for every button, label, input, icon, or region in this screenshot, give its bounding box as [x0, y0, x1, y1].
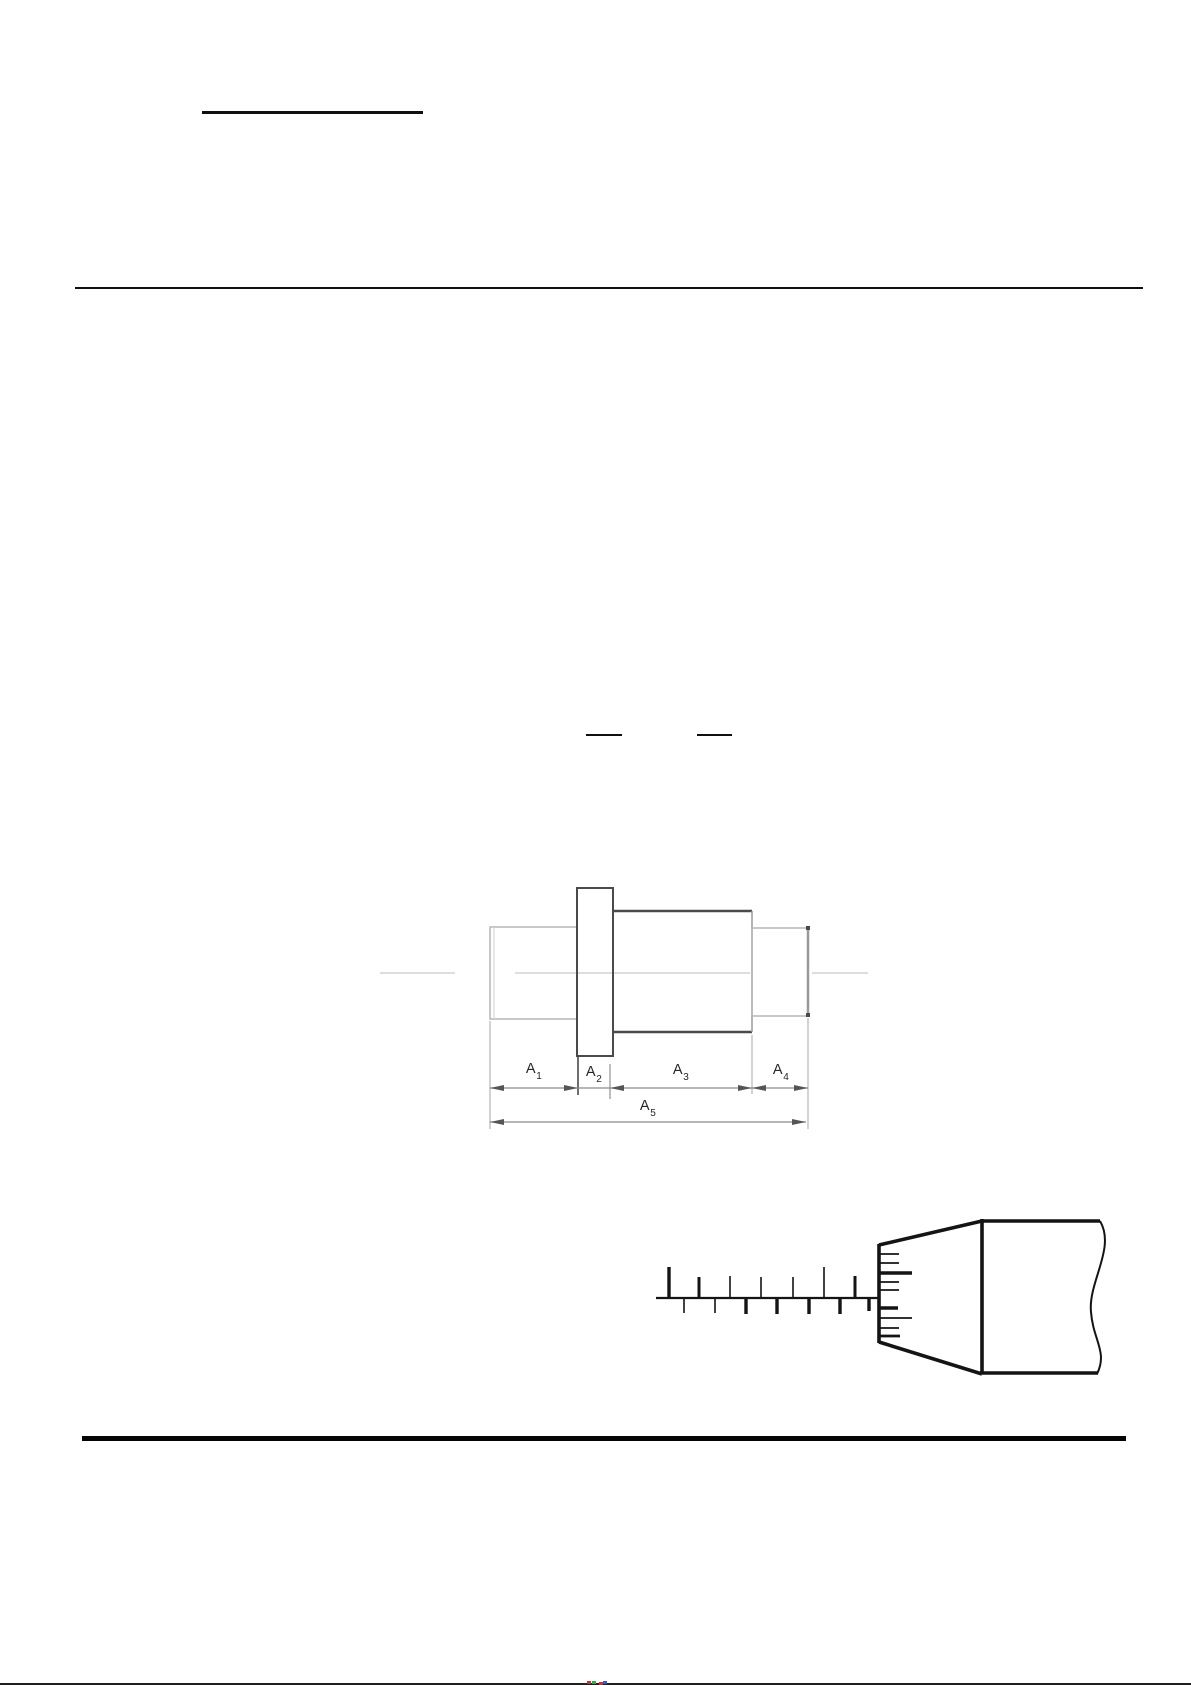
break-line	[1091, 1221, 1105, 1374]
dimension-label-a5: A5	[640, 1099, 656, 1117]
arrowhead	[792, 1119, 806, 1125]
arrowhead	[794, 1085, 808, 1091]
sleeve-ticks-lower	[684, 1298, 869, 1314]
arrowhead	[752, 1085, 766, 1091]
bottom-divider-rule	[82, 1436, 1126, 1441]
dimension-line-row	[490, 1085, 808, 1091]
thimble-ticks	[880, 1254, 912, 1336]
color-artifact	[592, 1681, 596, 1684]
figure-artwork	[0, 0, 1191, 1685]
figure-micrometer-drawing	[656, 1219, 1105, 1374]
shaft-large-cylinder	[613, 911, 752, 1032]
figure-shaft-drawing	[380, 888, 868, 1129]
shaft-right-cylinder	[752, 926, 810, 1017]
arrowhead	[490, 1085, 504, 1091]
color-artifact	[603, 1681, 607, 1684]
arrowhead	[564, 1085, 578, 1091]
arrowhead	[490, 1119, 504, 1125]
color-artifact	[587, 1681, 591, 1684]
dimension-label-a3: A3	[673, 1063, 689, 1081]
micrometer-thimble-outline	[879, 1219, 1105, 1374]
sleeve-ticks-upper	[669, 1267, 855, 1298]
dimension-label-a1: A1	[526, 1062, 542, 1080]
arrowhead	[610, 1085, 624, 1091]
document-page: A1 A2 A3 A4 A5	[0, 0, 1191, 1685]
dimension-label-a2: A2	[586, 1065, 602, 1083]
dimension-label-a4: A4	[773, 1063, 789, 1081]
shaft-flange	[577, 888, 613, 1056]
arrowhead	[738, 1085, 752, 1091]
dimension-line-overall	[490, 1119, 806, 1125]
